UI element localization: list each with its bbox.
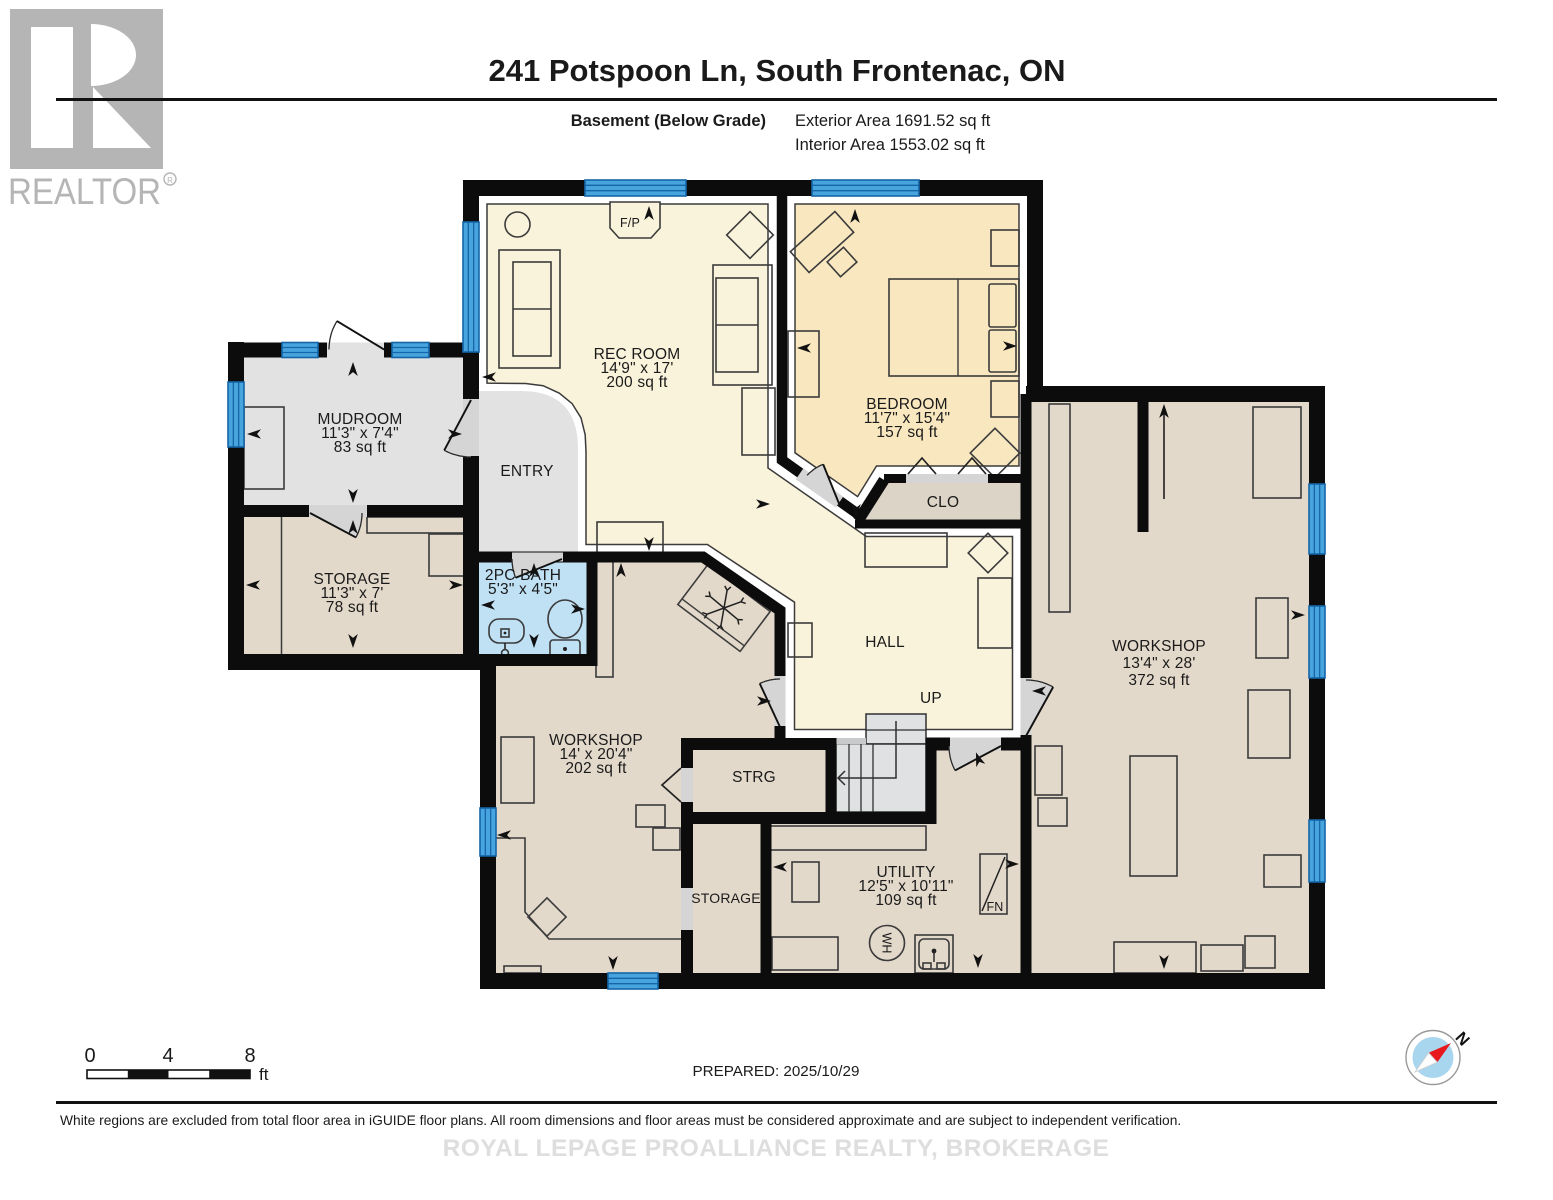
- svg-text:83 sq ft: 83 sq ft: [334, 439, 387, 456]
- svg-text:HALL: HALL: [865, 634, 905, 651]
- svg-text:PREPARED: 2025/10/29: PREPARED: 2025/10/29: [693, 1063, 860, 1080]
- svg-text:STORAGE: STORAGE: [691, 890, 761, 906]
- svg-text:109 sq ft: 109 sq ft: [875, 892, 937, 909]
- svg-text:13'4" x 28': 13'4" x 28': [1122, 655, 1195, 672]
- svg-text:4: 4: [162, 1045, 173, 1067]
- svg-text:STRG: STRG: [732, 769, 776, 786]
- svg-text:78 sq ft: 78 sq ft: [326, 599, 379, 616]
- svg-text:372 sq ft: 372 sq ft: [1128, 672, 1190, 689]
- svg-text:Interior Area 1553.02 sq ft: Interior Area 1553.02 sq ft: [795, 136, 985, 154]
- svg-text:ENTRY: ENTRY: [500, 463, 553, 480]
- svg-text:241 Potspoon Ln, South Fronten: 241 Potspoon Ln, South Frontenac, ON: [489, 53, 1066, 88]
- svg-text:FN: FN: [986, 900, 1003, 914]
- svg-text:ROYAL LEPAGE PROALLIANCE REALT: ROYAL LEPAGE PROALLIANCE REALTY, BROKERA…: [443, 1135, 1110, 1162]
- svg-text:WH: WH: [880, 933, 894, 954]
- svg-text:CLO: CLO: [927, 494, 959, 511]
- svg-text:R: R: [167, 176, 173, 185]
- svg-text:202 sq ft: 202 sq ft: [565, 760, 627, 777]
- svg-text:UP: UP: [920, 690, 942, 707]
- svg-text:REALTOR: REALTOR: [8, 171, 161, 212]
- svg-text:8: 8: [244, 1045, 255, 1067]
- svg-text:F/P: F/P: [620, 216, 640, 230]
- svg-text:Exterior Area 1691.52 sq ft: Exterior Area 1691.52 sq ft: [795, 112, 991, 130]
- svg-text:0: 0: [84, 1045, 95, 1067]
- svg-text:White regions are excluded fro: White regions are excluded from total fl…: [60, 1113, 1181, 1128]
- svg-text:ft: ft: [259, 1065, 269, 1084]
- svg-text:157 sq ft: 157 sq ft: [876, 424, 938, 441]
- svg-text:Basement (Below Grade): Basement (Below Grade): [571, 112, 766, 130]
- svg-text:5'3" x 4'5": 5'3" x 4'5": [488, 581, 558, 598]
- svg-text:200 sq ft: 200 sq ft: [606, 374, 668, 391]
- svg-text:WORKSHOP: WORKSHOP: [1112, 638, 1206, 655]
